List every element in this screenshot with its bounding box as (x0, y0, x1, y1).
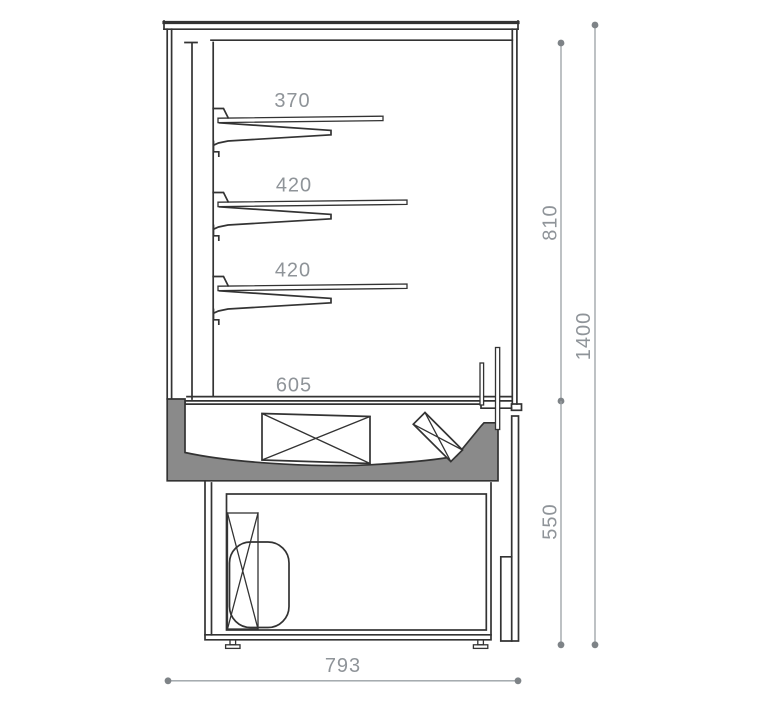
air-grille-post-inner (480, 363, 484, 405)
shelf-2-depth-label: 420 (276, 175, 312, 197)
dimension-total-depth-label: 793 (325, 655, 361, 677)
drawing-background (0, 0, 768, 726)
display-case-section-drawing: 370 420 420 605 810 550 1400 793 (0, 0, 768, 726)
dimension-total-height-label: 1400 (573, 312, 595, 361)
shelf-1-depth-label: 370 (274, 90, 310, 112)
evaporator-box (262, 414, 370, 464)
shelf-3-depth-label: 420 (275, 260, 311, 282)
drawing-page: 370 420 420 605 810 550 1400 793 (0, 0, 768, 726)
dimension-opening-height-label: 810 (540, 204, 562, 240)
base-shelf-depth-label: 605 (276, 375, 312, 397)
dimension-base-height-label: 550 (540, 503, 562, 539)
air-grille-post-front (496, 348, 500, 430)
